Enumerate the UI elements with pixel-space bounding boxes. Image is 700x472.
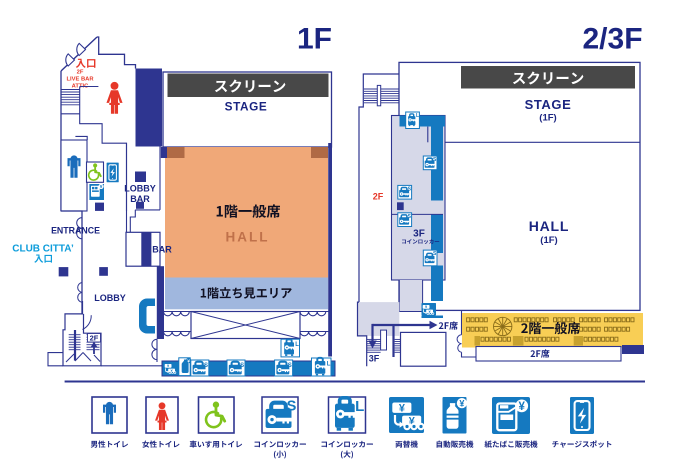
svg-text:2F: 2F: [90, 334, 99, 343]
svg-text:STAGE: STAGE: [225, 99, 268, 113]
svg-text:3F: 3F: [369, 354, 380, 364]
svg-text:LOBBY: LOBBY: [124, 184, 156, 194]
svg-text:HALL: HALL: [226, 230, 270, 245]
svg-text:3F: 3F: [413, 229, 425, 240]
svg-text:LOBBY: LOBBY: [94, 293, 126, 303]
svg-text:L: L: [355, 398, 364, 415]
svg-text:CLUB CITTA’: CLUB CITTA’: [12, 244, 74, 255]
svg-text:¥: ¥: [399, 402, 406, 414]
svg-text:L: L: [327, 361, 331, 367]
svg-text:S: S: [287, 399, 297, 415]
svg-text:¥: ¥: [518, 401, 525, 413]
svg-text:2F: 2F: [373, 192, 384, 202]
svg-text:L: L: [295, 342, 299, 348]
svg-text:2F: 2F: [77, 70, 84, 76]
svg-text:ENTRANCE: ENTRANCE: [51, 226, 100, 236]
svg-text:BAR: BAR: [152, 245, 172, 255]
svg-text:STAGE: STAGE: [525, 97, 572, 112]
svg-text:(1F): (1F): [540, 235, 557, 246]
svg-text:2/3F: 2/3F: [582, 23, 642, 56]
svg-text:HALL: HALL: [529, 218, 570, 234]
svg-text:LIVE BAR: LIVE BAR: [66, 77, 94, 83]
svg-text:S: S: [288, 363, 292, 369]
svg-text:S: S: [204, 363, 208, 369]
svg-text:(1F): (1F): [539, 113, 556, 124]
svg-text:¥: ¥: [100, 184, 103, 190]
svg-text:L: L: [416, 113, 419, 119]
svg-text:S: S: [240, 363, 244, 369]
svg-text:¥: ¥: [187, 358, 190, 364]
svg-text:1F: 1F: [297, 23, 332, 56]
